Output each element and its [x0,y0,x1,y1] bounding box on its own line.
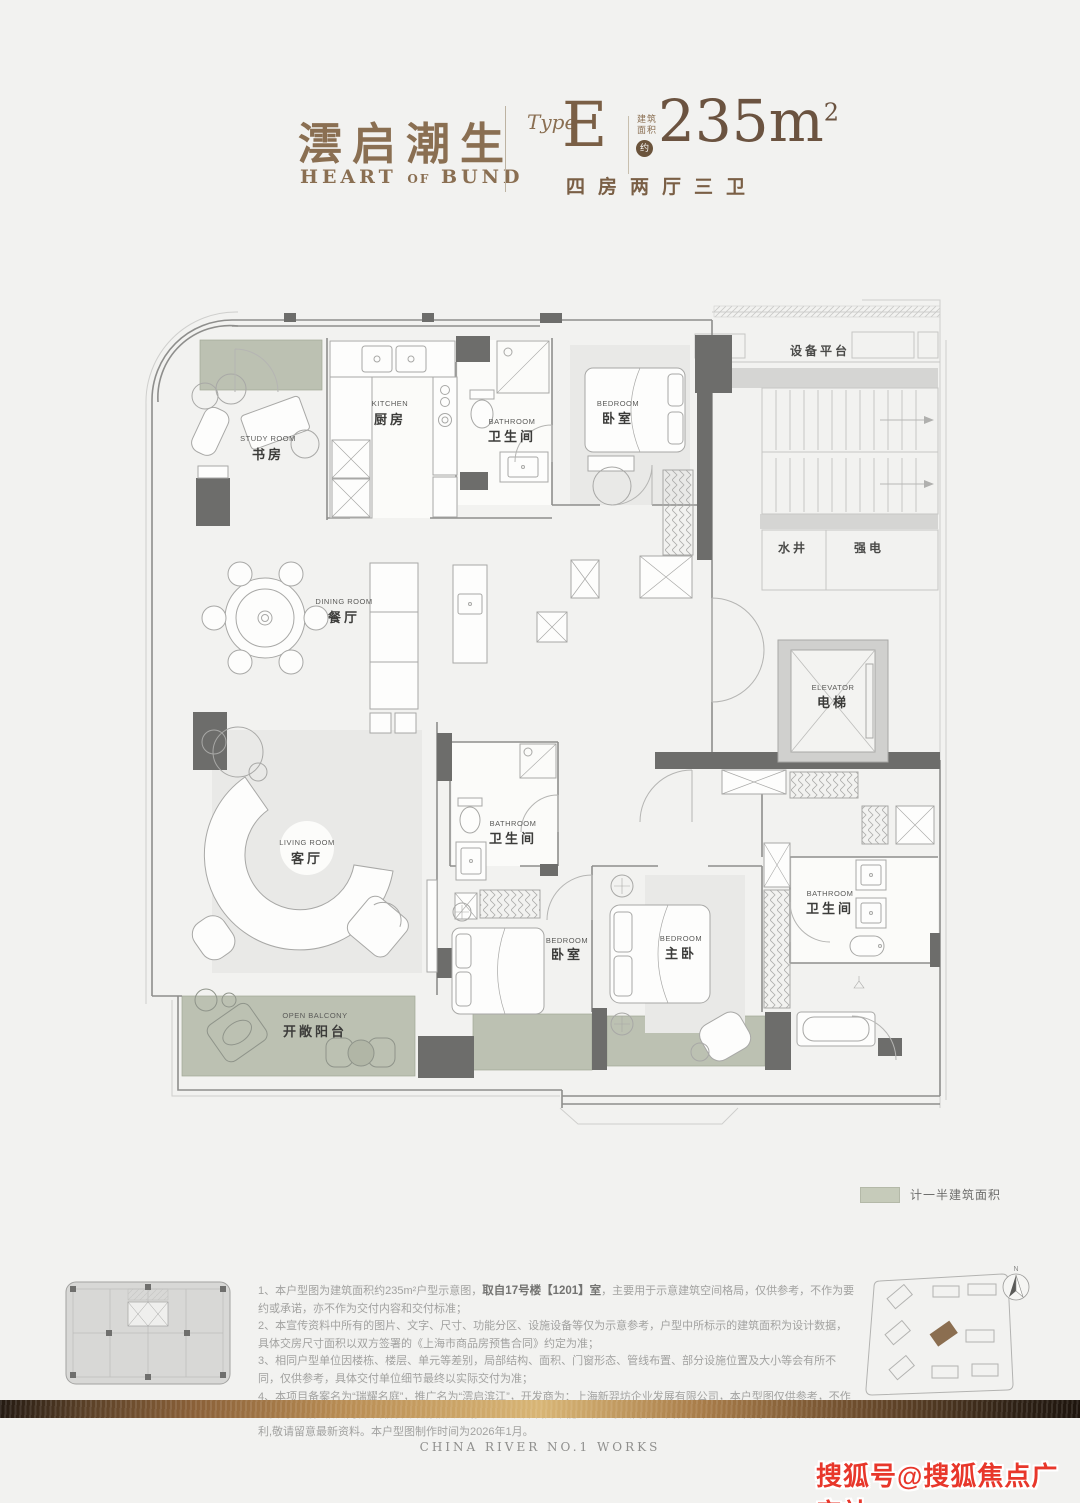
header-divider-small [628,116,629,174]
header-divider [505,106,506,192]
hall-cabinet [453,565,567,663]
siteplan [866,1274,1013,1395]
note-1: 1、本户型图为建筑面积约235m²户型示意图，取自17号楼【1201】室，主要用… [258,1282,858,1318]
label-balcony-en: OPEN BALCONY [282,1011,347,1020]
floorplan-svg: STUDY ROOM 书房 KITCHEN 厨房 BATHROOM 卫生间 BE… [0,0,1080,1503]
label-bedroom2-en: BEDROOM [546,936,588,945]
stairwell [718,368,938,590]
title-en-bund: BUND [441,166,523,188]
label-bedroom1-en: BEDROOM [597,399,639,408]
legend: 计一半建筑面积 [860,1186,1001,1203]
label-balcony-cn: 开敞阳台 [283,1024,347,1039]
area-label-line1: 建筑 [637,114,657,124]
label-kitchen-en: KITCHEN [372,399,408,408]
note-1-pre: 1、本户型图为建筑面积约235m²户型示意图， [258,1285,482,1297]
label-bedroom2-cn: 卧室 [551,947,583,962]
siteplan-highlighted-building [930,1321,958,1347]
label-study-cn: 书房 [252,447,284,462]
sohu-watermark: 搜狐号@搜狐焦点广安站 [816,1456,1080,1503]
label-bedroom1-cn: 卧室 [602,411,634,426]
label-bath2-cn: 卫生间 [489,831,537,846]
title-en-of: OF [407,172,430,186]
layout-summary: 四房两厅三卫 [566,172,758,199]
note-3: 3、相同户型单位因楼栋、楼层、单元等差别，局部结构、面积、门窗形态、管线布置、部… [258,1353,858,1388]
label-bath3-cn: 卫生间 [806,901,854,916]
label-elevator-cn: 电梯 [817,695,849,710]
area-value: 235m2 [658,92,839,150]
label-bath3-en: BATHROOM [807,889,854,898]
label-strong-power: 强电 [854,540,884,555]
dining-furniture [202,562,418,733]
bedroom2-furniture [452,903,544,1014]
note-1-highlight: 取自17号楼【1201】室 [482,1285,601,1297]
area-superscript: 2 [824,99,839,127]
label-living-cn: 客厅 [291,851,323,866]
note-2: 2、本宣传资料中所有的图片、文字、尺寸、功能分区、设施设备等仅为示意参考，户型中… [258,1318,858,1353]
title-en-heart: HEART [300,166,397,188]
label-equipment: 设备平台 [790,343,850,358]
compass-icon: N [1003,1266,1029,1300]
approx-badge: 约 [636,140,653,157]
area-unit-label: 建筑面积 [637,114,657,136]
label-water-well: 水井 [778,540,808,555]
area-label-line2: 面积 [637,125,657,135]
floorplan-poster: STUDY ROOM 书房 KITCHEN 厨房 BATHROOM 卫生间 BE… [0,0,1080,1503]
label-bath2-en: BATHROOM [490,819,537,828]
compass-north-label: N [1013,1266,1018,1273]
label-elevator-en: ELEVATOR [812,683,855,692]
project-title-en: HEART OF BUND [300,166,524,188]
label-bath1-en: BATHROOM [489,417,536,426]
footer-slogan: CHINA RIVER NO.1 WORKS [0,1440,1080,1454]
legend-label: 计一半建筑面积 [910,1186,1001,1203]
keyplan [66,1282,230,1384]
label-dining-en: DINING ROOM [315,597,372,606]
type-value: E [562,94,607,156]
label-master-cn: 主卧 [665,946,697,961]
label-bath1-cn: 卫生间 [488,429,536,444]
label-master-en: BEDROOM [660,934,702,943]
label-dining-cn: 餐厅 [327,610,360,625]
label-living-en: LIVING ROOM [279,838,335,847]
label-kitchen-cn: 厨房 [374,412,406,427]
exterior-hatch-top [714,306,940,317]
legend-swatch [860,1187,900,1203]
area-number: 235m [658,87,824,155]
label-study-en: STUDY ROOM [240,434,296,443]
bronze-gradient-bar [0,1400,1080,1418]
project-title-cn: 澐启潮生 [298,108,514,172]
